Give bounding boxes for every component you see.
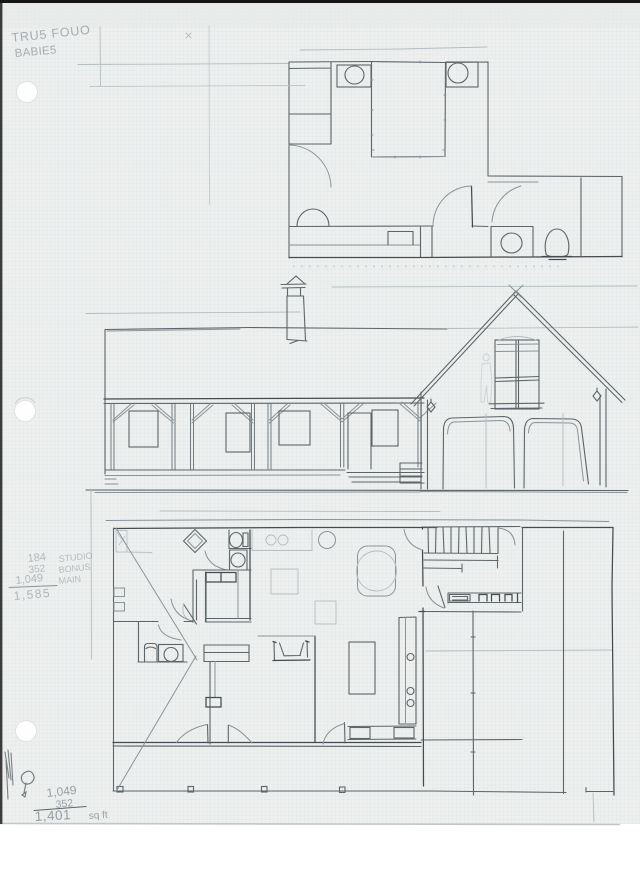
svg-text:1,401: 1,401 — [34, 807, 71, 824]
svg-text:sq ft: sq ft — [88, 810, 108, 822]
